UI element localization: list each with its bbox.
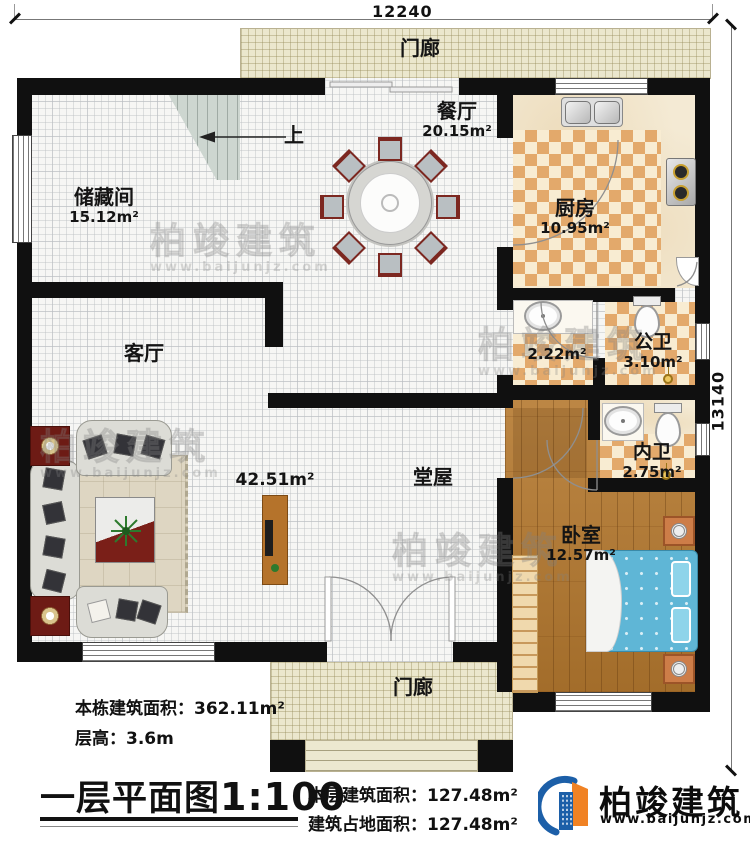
room-label-public-wc: 公卫 3.10m² — [623, 332, 682, 371]
dimension-right-line — [731, 25, 732, 772]
plant — [109, 514, 143, 548]
floor-plan: 12240 13140 — [0, 0, 750, 843]
room-label-wash-area: 2.22m² — [527, 346, 586, 363]
wall-top-c — [648, 78, 710, 95]
wall-center-a — [497, 95, 513, 138]
dining-chair — [378, 253, 402, 277]
wall-bottom-b — [215, 642, 327, 662]
storage-window — [12, 135, 32, 243]
dining-table — [348, 161, 432, 245]
stair-up-label: 上 — [284, 124, 304, 147]
sofa-main — [30, 460, 80, 600]
lamp — [38, 434, 62, 458]
burner — [673, 185, 689, 201]
title-underline-thick — [40, 817, 298, 821]
stat-floor-area: 本层建筑面积：127.48m² — [308, 781, 518, 806]
room-label-porch-bottom: 门廊 — [393, 676, 433, 699]
wall-right-b — [695, 360, 710, 423]
title-underline-thin — [40, 826, 298, 827]
sofa-chaise — [76, 586, 168, 638]
tv — [265, 520, 273, 556]
wall-left-upper — [17, 95, 32, 135]
dining-table-center — [381, 194, 399, 212]
room-label-private-wc: 内卫 2.75m² — [622, 442, 681, 481]
wash-basin — [524, 301, 562, 331]
porch-pillar-right — [478, 740, 513, 772]
tv-cabinet — [262, 495, 288, 585]
room-label-kitchen: 厨房 10.95m² — [540, 197, 610, 237]
wall-center-b — [497, 247, 513, 310]
porch-bottom-floor — [270, 655, 513, 741]
room-label-storage: 储藏间 15.12m² — [69, 186, 139, 226]
wall-wc-divider — [593, 358, 605, 385]
porch-pillar-left — [270, 740, 305, 772]
private-wc-window — [695, 423, 710, 456]
pillow — [671, 607, 691, 643]
porch-top-floor — [240, 28, 711, 79]
dining-chair — [378, 137, 402, 161]
wall-storage-stub — [265, 282, 283, 347]
floor-drain — [663, 374, 673, 384]
room-area-hall: 42.51m² — [236, 471, 315, 491]
stat-total-area: 本栋建筑面积：362.11m² — [75, 694, 285, 719]
dining-chair — [320, 195, 344, 219]
wall-dining-hall — [268, 393, 513, 408]
kitchen-window — [555, 78, 648, 95]
living-window — [82, 642, 215, 662]
dining-chair — [436, 195, 460, 219]
kitchen-sink — [561, 97, 623, 127]
wall-bedroom-bottom-a — [513, 692, 555, 712]
room-label-hall: 堂屋 — [413, 466, 453, 489]
room-label-bedroom: 卧室 12.57m² — [546, 524, 616, 564]
sofa-loveseat — [76, 420, 172, 476]
wall-top-a — [17, 78, 325, 95]
brand-logo-icon — [538, 774, 594, 838]
end-table — [30, 426, 70, 466]
small-plant — [271, 564, 279, 572]
public-wc-window — [695, 323, 710, 360]
wall-bedroom-bottom-b — [652, 692, 710, 712]
nightstand — [663, 654, 695, 684]
room-label-living: 客厅 — [124, 342, 164, 365]
bedroom-window — [555, 692, 652, 712]
closet — [512, 555, 538, 693]
end-table — [30, 596, 70, 636]
stat-footprint-area: 建筑占地面积：127.48m² — [308, 810, 518, 835]
sink-bowl-right — [594, 101, 620, 124]
dimension-right-value: 13140 — [709, 372, 728, 432]
wall-center-d — [497, 478, 513, 692]
burner — [673, 164, 689, 180]
wall-bottom-a — [17, 642, 82, 662]
bed — [588, 550, 698, 652]
room-label-dining: 餐厅 20.15m² — [422, 100, 492, 140]
entry-steps — [305, 740, 478, 772]
bedroom-door-swing-area — [513, 408, 587, 478]
lamp — [38, 604, 62, 628]
nightstand — [663, 516, 695, 546]
wall-right-a — [695, 95, 710, 323]
plan-title: 一层平面图1:100 — [40, 770, 346, 821]
bed-sheet-fold — [586, 550, 622, 652]
wall-storage-living — [17, 282, 283, 298]
brand-website: www.baijunjz.com — [600, 812, 750, 827]
wall-private-wc-divider — [588, 400, 600, 440]
dimension-top-line — [15, 19, 713, 20]
sink-bowl-left — [565, 101, 591, 124]
stove — [666, 158, 696, 206]
private-wc-basin — [604, 406, 642, 436]
room-label-porch-top: 门廊 — [400, 37, 440, 60]
pillow — [671, 561, 691, 597]
wall-bath-mid — [513, 385, 695, 400]
stat-floor-height: 层高：3.6m — [75, 724, 174, 749]
coffee-table — [95, 497, 155, 563]
wall-top-b — [459, 78, 555, 95]
